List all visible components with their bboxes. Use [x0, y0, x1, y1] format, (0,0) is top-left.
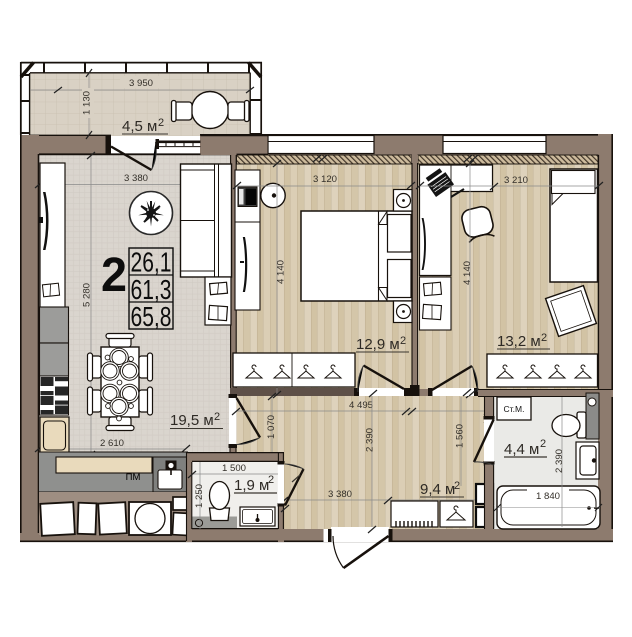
- svg-text:4 140: 4 140: [276, 260, 287, 284]
- svg-text:2: 2: [454, 480, 460, 492]
- svg-text:Ст.М.: Ст.М.: [504, 404, 525, 414]
- svg-text:65,8: 65,8: [131, 301, 172, 332]
- svg-text:5 280: 5 280: [82, 283, 93, 307]
- svg-text:1 070: 1 070: [266, 415, 277, 439]
- svg-text:1,9 м: 1,9 м: [234, 477, 269, 494]
- svg-text:2: 2: [101, 249, 127, 302]
- svg-text:1 130: 1 130: [82, 91, 93, 115]
- svg-text:2 390: 2 390: [554, 449, 565, 473]
- svg-text:3 120: 3 120: [313, 174, 337, 185]
- svg-text:1 250: 1 250: [194, 484, 205, 508]
- svg-text:2: 2: [214, 411, 220, 423]
- svg-text:2: 2: [540, 438, 546, 450]
- svg-text:2: 2: [541, 332, 547, 344]
- svg-text:4 495: 4 495: [349, 400, 373, 411]
- svg-text:2: 2: [158, 117, 164, 129]
- svg-text:3 380: 3 380: [124, 173, 148, 184]
- svg-text:12,9 м: 12,9 м: [356, 336, 400, 353]
- svg-text:2 390: 2 390: [365, 428, 376, 452]
- svg-text:3 380: 3 380: [328, 489, 352, 500]
- svg-text:1 500: 1 500: [222, 463, 246, 474]
- svg-text:19,5 м: 19,5 м: [170, 412, 214, 429]
- svg-text:4,4 м: 4,4 м: [504, 441, 539, 458]
- svg-text:4,5 м: 4,5 м: [122, 118, 157, 135]
- svg-text:3 210: 3 210: [504, 175, 528, 186]
- svg-text:9,4 м: 9,4 м: [420, 481, 455, 498]
- svg-text:1 840: 1 840: [536, 491, 560, 502]
- svg-text:2 610: 2 610: [100, 438, 124, 449]
- svg-text:2: 2: [400, 335, 406, 347]
- svg-text:1 560: 1 560: [455, 424, 466, 448]
- svg-text:3 950: 3 950: [129, 78, 153, 89]
- svg-text:26,1: 26,1: [131, 247, 172, 278]
- svg-text:4 140: 4 140: [462, 261, 473, 285]
- svg-text:13,2 м: 13,2 м: [497, 333, 541, 350]
- svg-text:2: 2: [268, 474, 274, 486]
- svg-text:ПМ: ПМ: [126, 472, 141, 483]
